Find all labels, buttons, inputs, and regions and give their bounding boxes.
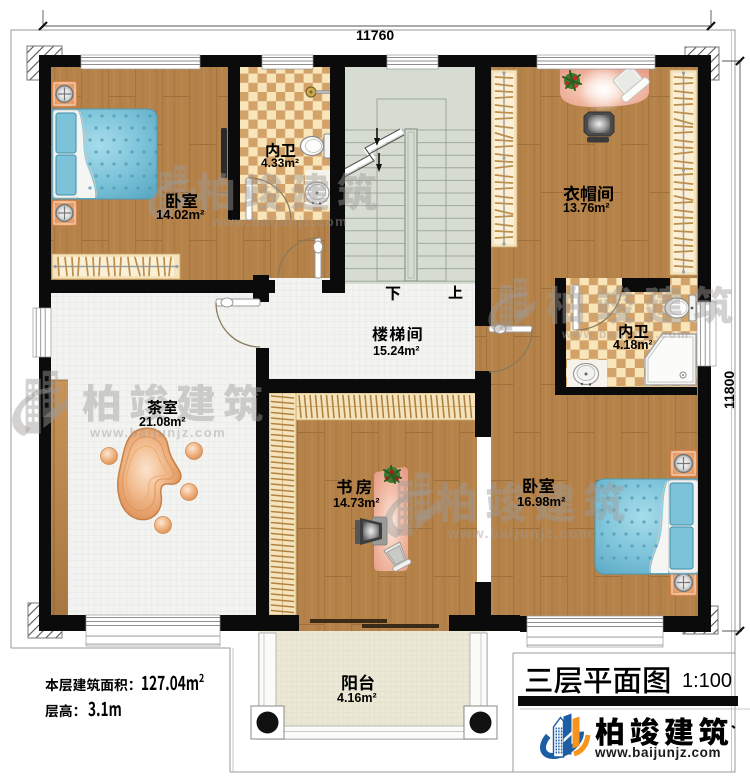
svg-text:14.73m²: 14.73m²: [333, 496, 380, 510]
svg-text:4.16m²: 4.16m²: [337, 691, 377, 705]
svg-text:15.24m²: 15.24m²: [373, 344, 420, 358]
svg-text:www.baijunjz.com: www.baijunjz.com: [594, 745, 721, 760]
svg-text:11760: 11760: [356, 27, 394, 43]
svg-text:www.baijunjz.com: www.baijunjz.com: [211, 214, 348, 229]
svg-text:13.76m²: 13.76m²: [563, 201, 610, 215]
svg-text:1:100: 1:100: [682, 670, 732, 692]
svg-text:21.08m²: 21.08m²: [139, 415, 186, 429]
svg-text:www.baijunjz.com: www.baijunjz.com: [447, 525, 593, 541]
svg-text:4.18m²: 4.18m²: [613, 338, 653, 352]
svg-text:11800: 11800: [721, 371, 737, 409]
svg-text:4.33m²: 4.33m²: [261, 156, 299, 170]
svg-text:14.02m²: 14.02m²: [156, 207, 205, 222]
svg-text:16.98m²: 16.98m²: [517, 494, 566, 509]
